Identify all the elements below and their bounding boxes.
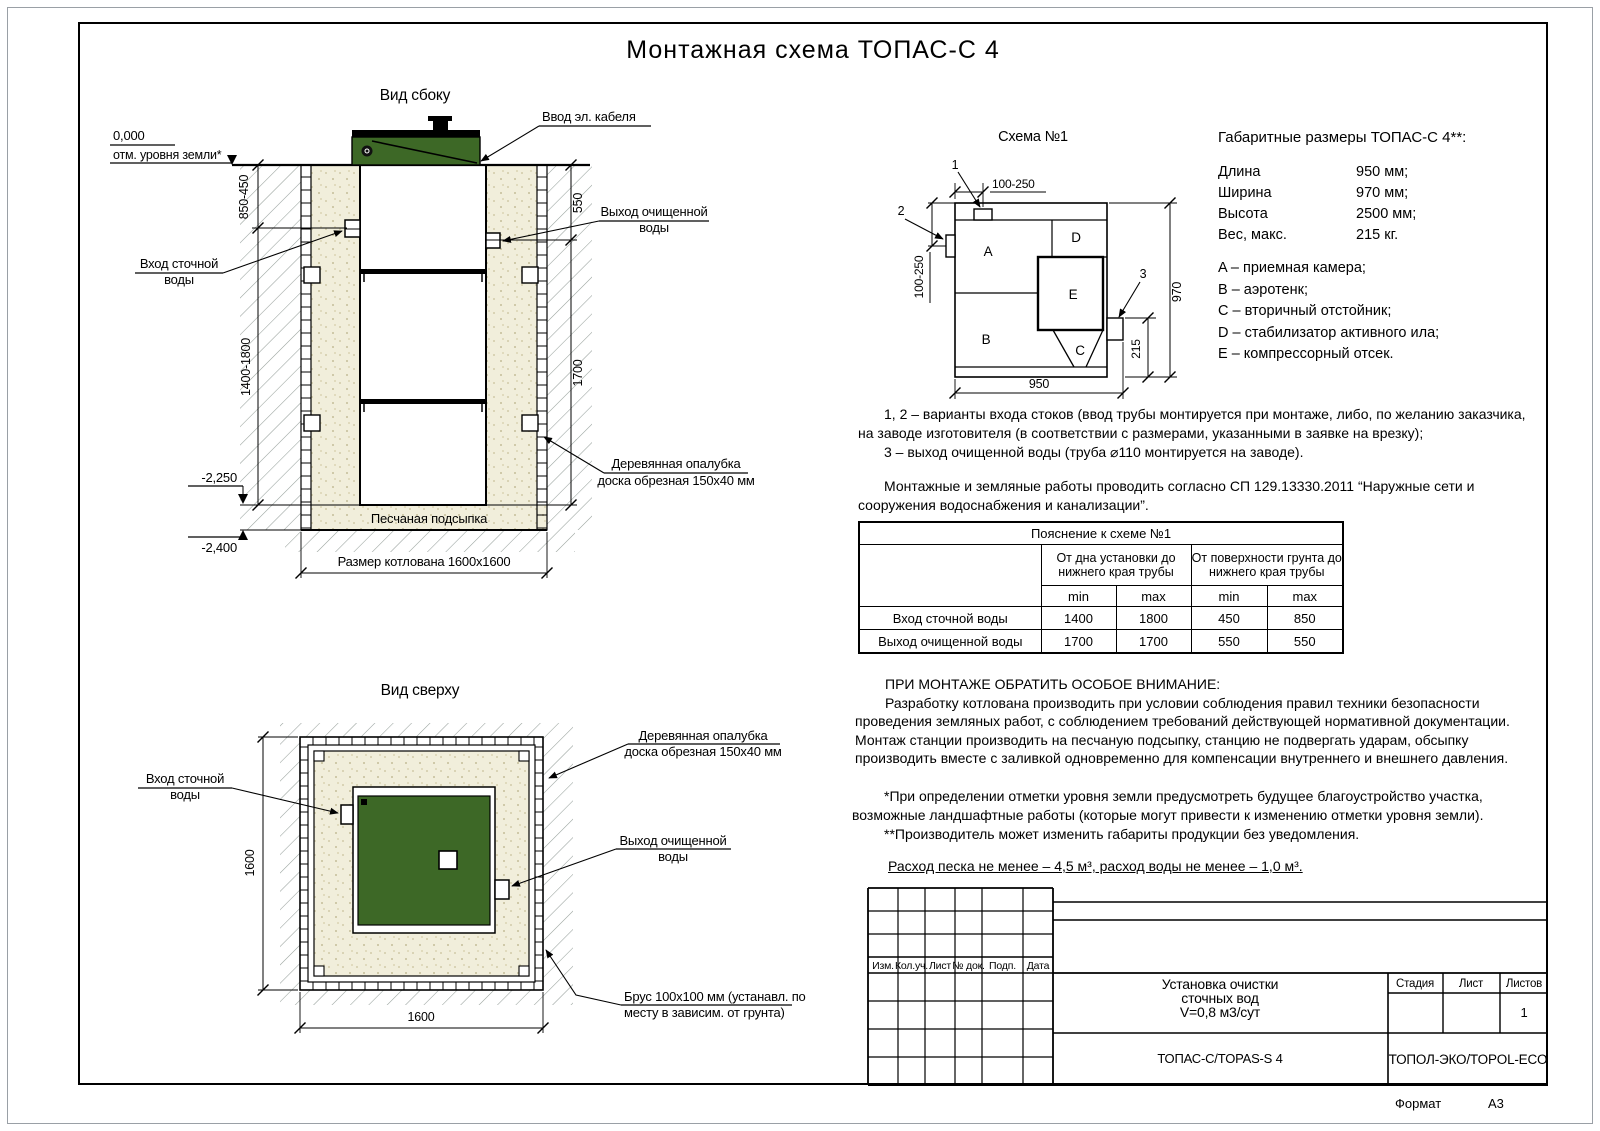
warning-body: Разработку котлована производить при усл… [855,694,1527,768]
spec-row: Ширина970 мм; [1218,183,1548,204]
zero-level-mark: 0,000 отм. уровня земли* [110,128,237,165]
svg-text:доска обрезная 150x40 мм: доска обрезная 150x40 мм [624,744,782,759]
side-view-title: Вид сбоку [380,87,451,104]
table-group-header: От дна установки до нижнего края трубы [1041,545,1191,586]
legend-item: C – вторичный отстойник; [1218,301,1578,323]
svg-text:Ввод эл. кабеля: Ввод эл. кабеля [542,109,636,124]
compartment-c: C [1075,343,1085,358]
svg-text:3: 3 [1140,267,1147,281]
dim-inlet2-offset: 100-250 [912,255,926,298]
compartment-b: B [982,332,991,347]
spec-row: Вес, макс.215 кг. [1218,225,1548,246]
footnote-2: **Производитель может изменить габариты … [852,825,1540,844]
callout-2: 2 [898,204,943,239]
legend-item: A – приемная камера; [1218,258,1578,280]
svg-text:Дата: Дата [1027,960,1050,972]
schema-1-diagram: A B C D E 1 2 3 100-250 [870,125,1190,415]
vent-hatch [439,851,457,869]
svg-text:0,000: 0,000 [113,128,145,143]
cable-callout: Ввод эл. кабеля [481,109,651,161]
top-view-diagram: 1600 1600 Вход сточной воды Деревянная о… [130,655,810,1045]
outlet-pipe-stub [486,233,500,248]
compartment-d: D [1071,230,1081,245]
lid-latch [361,799,367,805]
dim-right-970 [1109,198,1177,383]
inlet-pipe-stub-top [341,805,353,824]
schema-title: Схема №1 [998,129,1068,145]
drawing-sheet: Монтажная схема ТОПАС-С 4 [0,0,1600,1131]
warning-heading: ПРИ МОНТАЖЕ ОБРАТИТЬ ОСОБОЕ ВНИМАНИЕ: [855,675,1527,694]
svg-text:-2,400: -2,400 [201,540,237,555]
dim-inlet1-offset: 100-250 [992,177,1035,191]
svg-text:Кол.уч.: Кол.уч. [895,960,928,972]
formwork-right [537,165,547,530]
note-outlet: 3 – выход очищенной воды (труба ⌀110 мон… [858,443,1534,462]
svg-text:Вход сточной: Вход сточной [140,256,218,271]
svg-text:Лист: Лист [929,960,951,972]
sand-bed-label: Песчаная подсыпка [371,511,488,526]
dim-inlet-from-bottom: 1400-1800 [239,338,253,396]
legend-item: D – стабилизатор активного ила; [1218,323,1578,345]
dim-pit-width: 1600 [407,1010,434,1024]
svg-text:доска обрезная 150x40 мм: доска обрезная 150x40 мм [597,473,755,488]
svg-text:V=0,8 м3/сут: V=0,8 м3/сут [1180,1004,1261,1020]
table-title: Пояснение к схеме №1 [859,522,1343,545]
pit-size-label: Размер котлована 1600x1600 [338,554,511,569]
explanation-table: Пояснение к схеме №1 От дна установки до… [858,521,1344,654]
project-name: Установка очистки сточных вод V=0,8 м3/с… [1162,976,1279,1020]
dim-inlet-depth: 850-450 [237,175,251,220]
svg-text:Подп.: Подп. [989,960,1016,972]
table-subheader: max [1267,586,1343,607]
model-name: ТОПАС-С/TOPAS-S 4 [1157,1051,1282,1066]
table-empty-cell [859,545,1041,607]
table-row: Выход очищенной воды 1700 1700 550 550 [859,630,1343,654]
spec-title: Габаритные размеры ТОПАС-С 4**: [1218,129,1548,146]
dimensions-spec-block: Габаритные размеры ТОПАС-С 4**: Длина950… [1218,129,1548,246]
dim-outlet-height: 215 [1129,339,1143,359]
top-view-title: Вид сверху [381,682,460,699]
table-group-header: От поверхности грунта до нижнего края тр… [1191,545,1343,586]
svg-text:воды: воды [658,849,688,864]
compartment-legend: A – приемная камера; B – аэротенк; C – в… [1218,258,1578,366]
dim-pit-height: 1600 [243,849,257,876]
sheets-count: 1 [1520,1005,1527,1020]
dim-outlet-depth: 550 [571,193,585,214]
elevation-2250: -2,250 [188,470,248,504]
outlet-3-stub [1107,318,1123,340]
compartment-a: A [984,244,993,259]
svg-text:месту в зависим. от грунта): месту в зависим. от грунта) [624,1005,785,1020]
format-label: Формат [1395,1096,1441,1111]
outlet-pipe-stub-top [495,880,509,899]
inlet-option-2-stub [946,235,955,257]
compartment-e: E [1069,287,1078,302]
tank-lid [352,116,480,165]
vent-cap [428,116,452,121]
format-strip: Формат А3 [1395,1096,1545,1111]
formwork-callout-top: Деревянная опалубка доска обрезная 150x4… [549,728,782,778]
footnotes-block: *При определении отметки уровня земли пр… [852,787,1540,876]
legend-item: B – аэротенк; [1218,280,1578,302]
company-name: ТОПОЛ-ЭКО/TOPOL-ECO [1389,1052,1548,1067]
dim-width-950: 950 [1029,377,1050,391]
svg-text:отм. уровня земли*: отм. уровня земли* [113,148,222,162]
spec-row: Высота2500 мм; [1218,204,1548,225]
elevation-2400: -2,400 [188,530,248,555]
svg-text:Листов: Листов [1506,978,1542,990]
formwork-left [301,165,311,530]
side-view-diagram: Песчаная подсыпка [85,85,765,585]
svg-text:Брус 100x100 мм (устанавл. по: Брус 100x100 мм (устанавл. по [624,989,806,1004]
format-value: А3 [1488,1096,1504,1111]
tank-body [360,165,486,505]
sheet-headers: Стадия Лист Листов [1396,978,1542,990]
page-title: Монтажная схема ТОПАС-С 4 [78,36,1548,65]
svg-text:Выход очищенной: Выход очищенной [619,833,726,848]
svg-text:Деревянная опалубка: Деревянная опалубка [638,728,768,743]
svg-text:воды: воды [639,220,669,235]
svg-text:Изм.: Изм. [872,960,894,972]
svg-text:2: 2 [898,204,905,218]
material-consumption: Расход песка не менее – 4,5 м³, расход в… [888,857,1540,876]
callout-1: 1 [952,158,980,207]
table-subheader: max [1116,586,1191,607]
svg-text:№ док.: № док. [952,960,984,972]
note-inlet-variants: 1, 2 – варианты входа стоков (ввод трубы… [858,405,1534,443]
svg-text:Выход очищенной: Выход очищенной [600,204,707,219]
svg-text:1: 1 [952,158,959,172]
footnote-1: *При определении отметки уровня земли пр… [852,787,1540,825]
title-block-stamp: Изм. Кол.уч. Лист № док. Подп. Дата Стад… [858,883,1548,1088]
svg-text:воды: воды [170,787,200,802]
svg-text:Деревянная опалубка: Деревянная опалубка [611,456,741,471]
tank-lid-top [358,796,490,925]
svg-text:Стадия: Стадия [1396,978,1434,990]
spec-row: Длина950 мм; [1218,162,1548,183]
table-subheader: min [1041,586,1116,607]
inlet-pipe-stub [345,220,360,237]
table-row: Вход сточной воды 1400 1800 450 850 [859,607,1343,630]
timber-callout: Брус 100x100 мм (устанавл. по месту в за… [546,950,806,1020]
svg-text:Вход сточной: Вход сточной [146,771,224,786]
svg-text:воды: воды [164,272,194,287]
dim-height-970: 970 [1170,282,1184,303]
svg-text:-2,250: -2,250 [201,470,237,485]
inlet-option-1-stub [974,209,992,220]
installation-warning: ПРИ МОНТАЖЕ ОБРАТИТЬ ОСОБОЕ ВНИМАНИЕ: Ра… [855,675,1527,768]
table-subheader: min [1191,586,1267,607]
callout-3: 3 [1119,267,1147,317]
dim-outlet-from-bottom: 1700 [571,359,585,386]
legend-item: E – компрессорный отсек. [1218,344,1578,366]
svg-text:Лист: Лист [1459,978,1484,990]
notes-block: 1, 2 – варианты входа стоков (ввод трубы… [858,405,1534,515]
note-sp-standard: Монтажные и земляные работы проводить со… [858,477,1534,515]
